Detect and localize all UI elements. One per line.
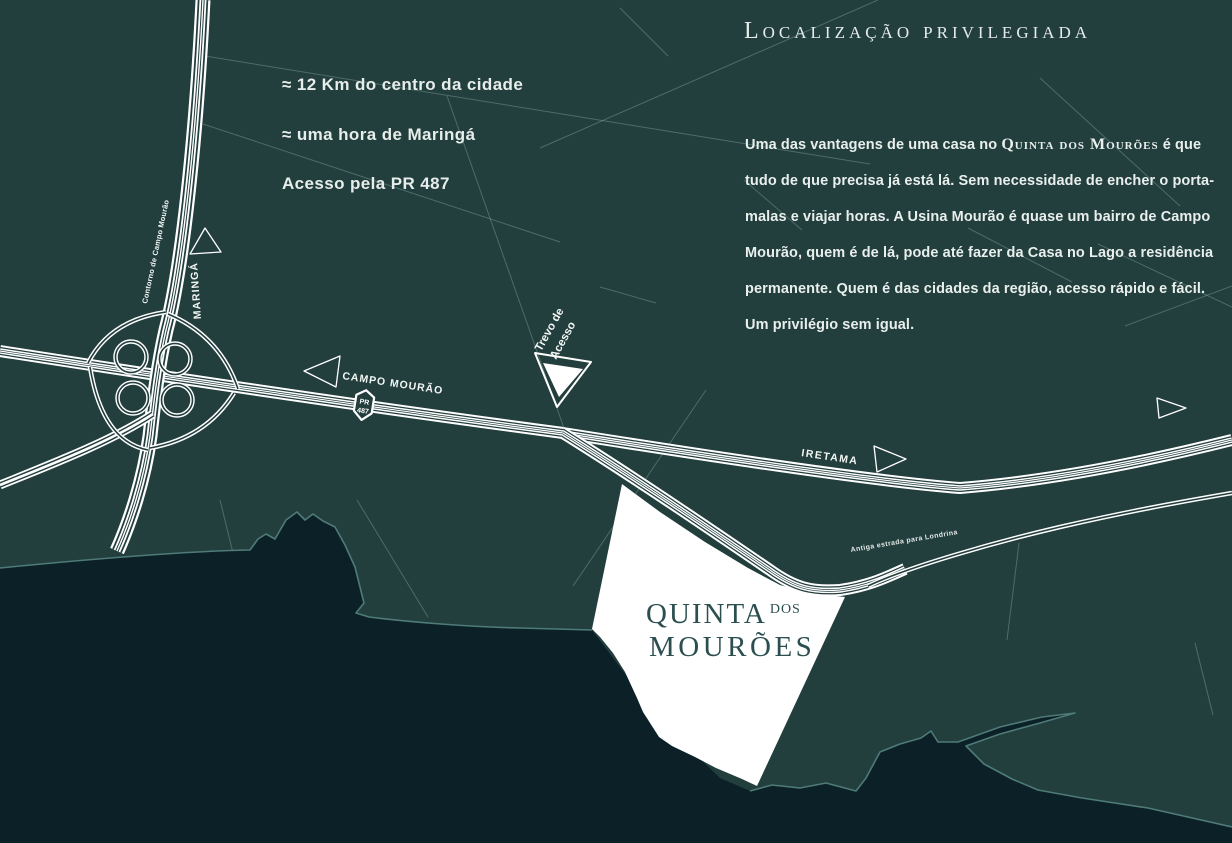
info-distance-city: ≈ 12 Km do centro da cidade <box>282 75 523 95</box>
page-title: Localização privilegiada <box>744 18 1091 45</box>
logo-top-word: QUINTA <box>646 598 767 630</box>
logo-top-suffix: DOS <box>770 602 801 617</box>
paragraph-rest: é que tudo de que precisa já está lá. Se… <box>745 137 1214 333</box>
paragraph-brand-name: Quinta dos Mourões <box>1001 136 1158 153</box>
location-map-page: PR 487 CAMPO MOURÃO MARINGÁ Contorno de … <box>0 0 1232 843</box>
quinta-dos-mouroes-logo: QUINTADOS MOURÕES <box>646 600 815 662</box>
paragraph-intro: Uma das vantagens de uma casa no <box>745 137 1001 153</box>
description-paragraph: Uma das vantagens de uma casa no Quinta … <box>745 127 1223 343</box>
logo-bottom-word: MOURÕES <box>649 633 815 662</box>
info-access-road: Acesso pela PR 487 <box>282 174 450 194</box>
info-distance-maringa: ≈ uma hora de Maringá <box>282 125 475 145</box>
